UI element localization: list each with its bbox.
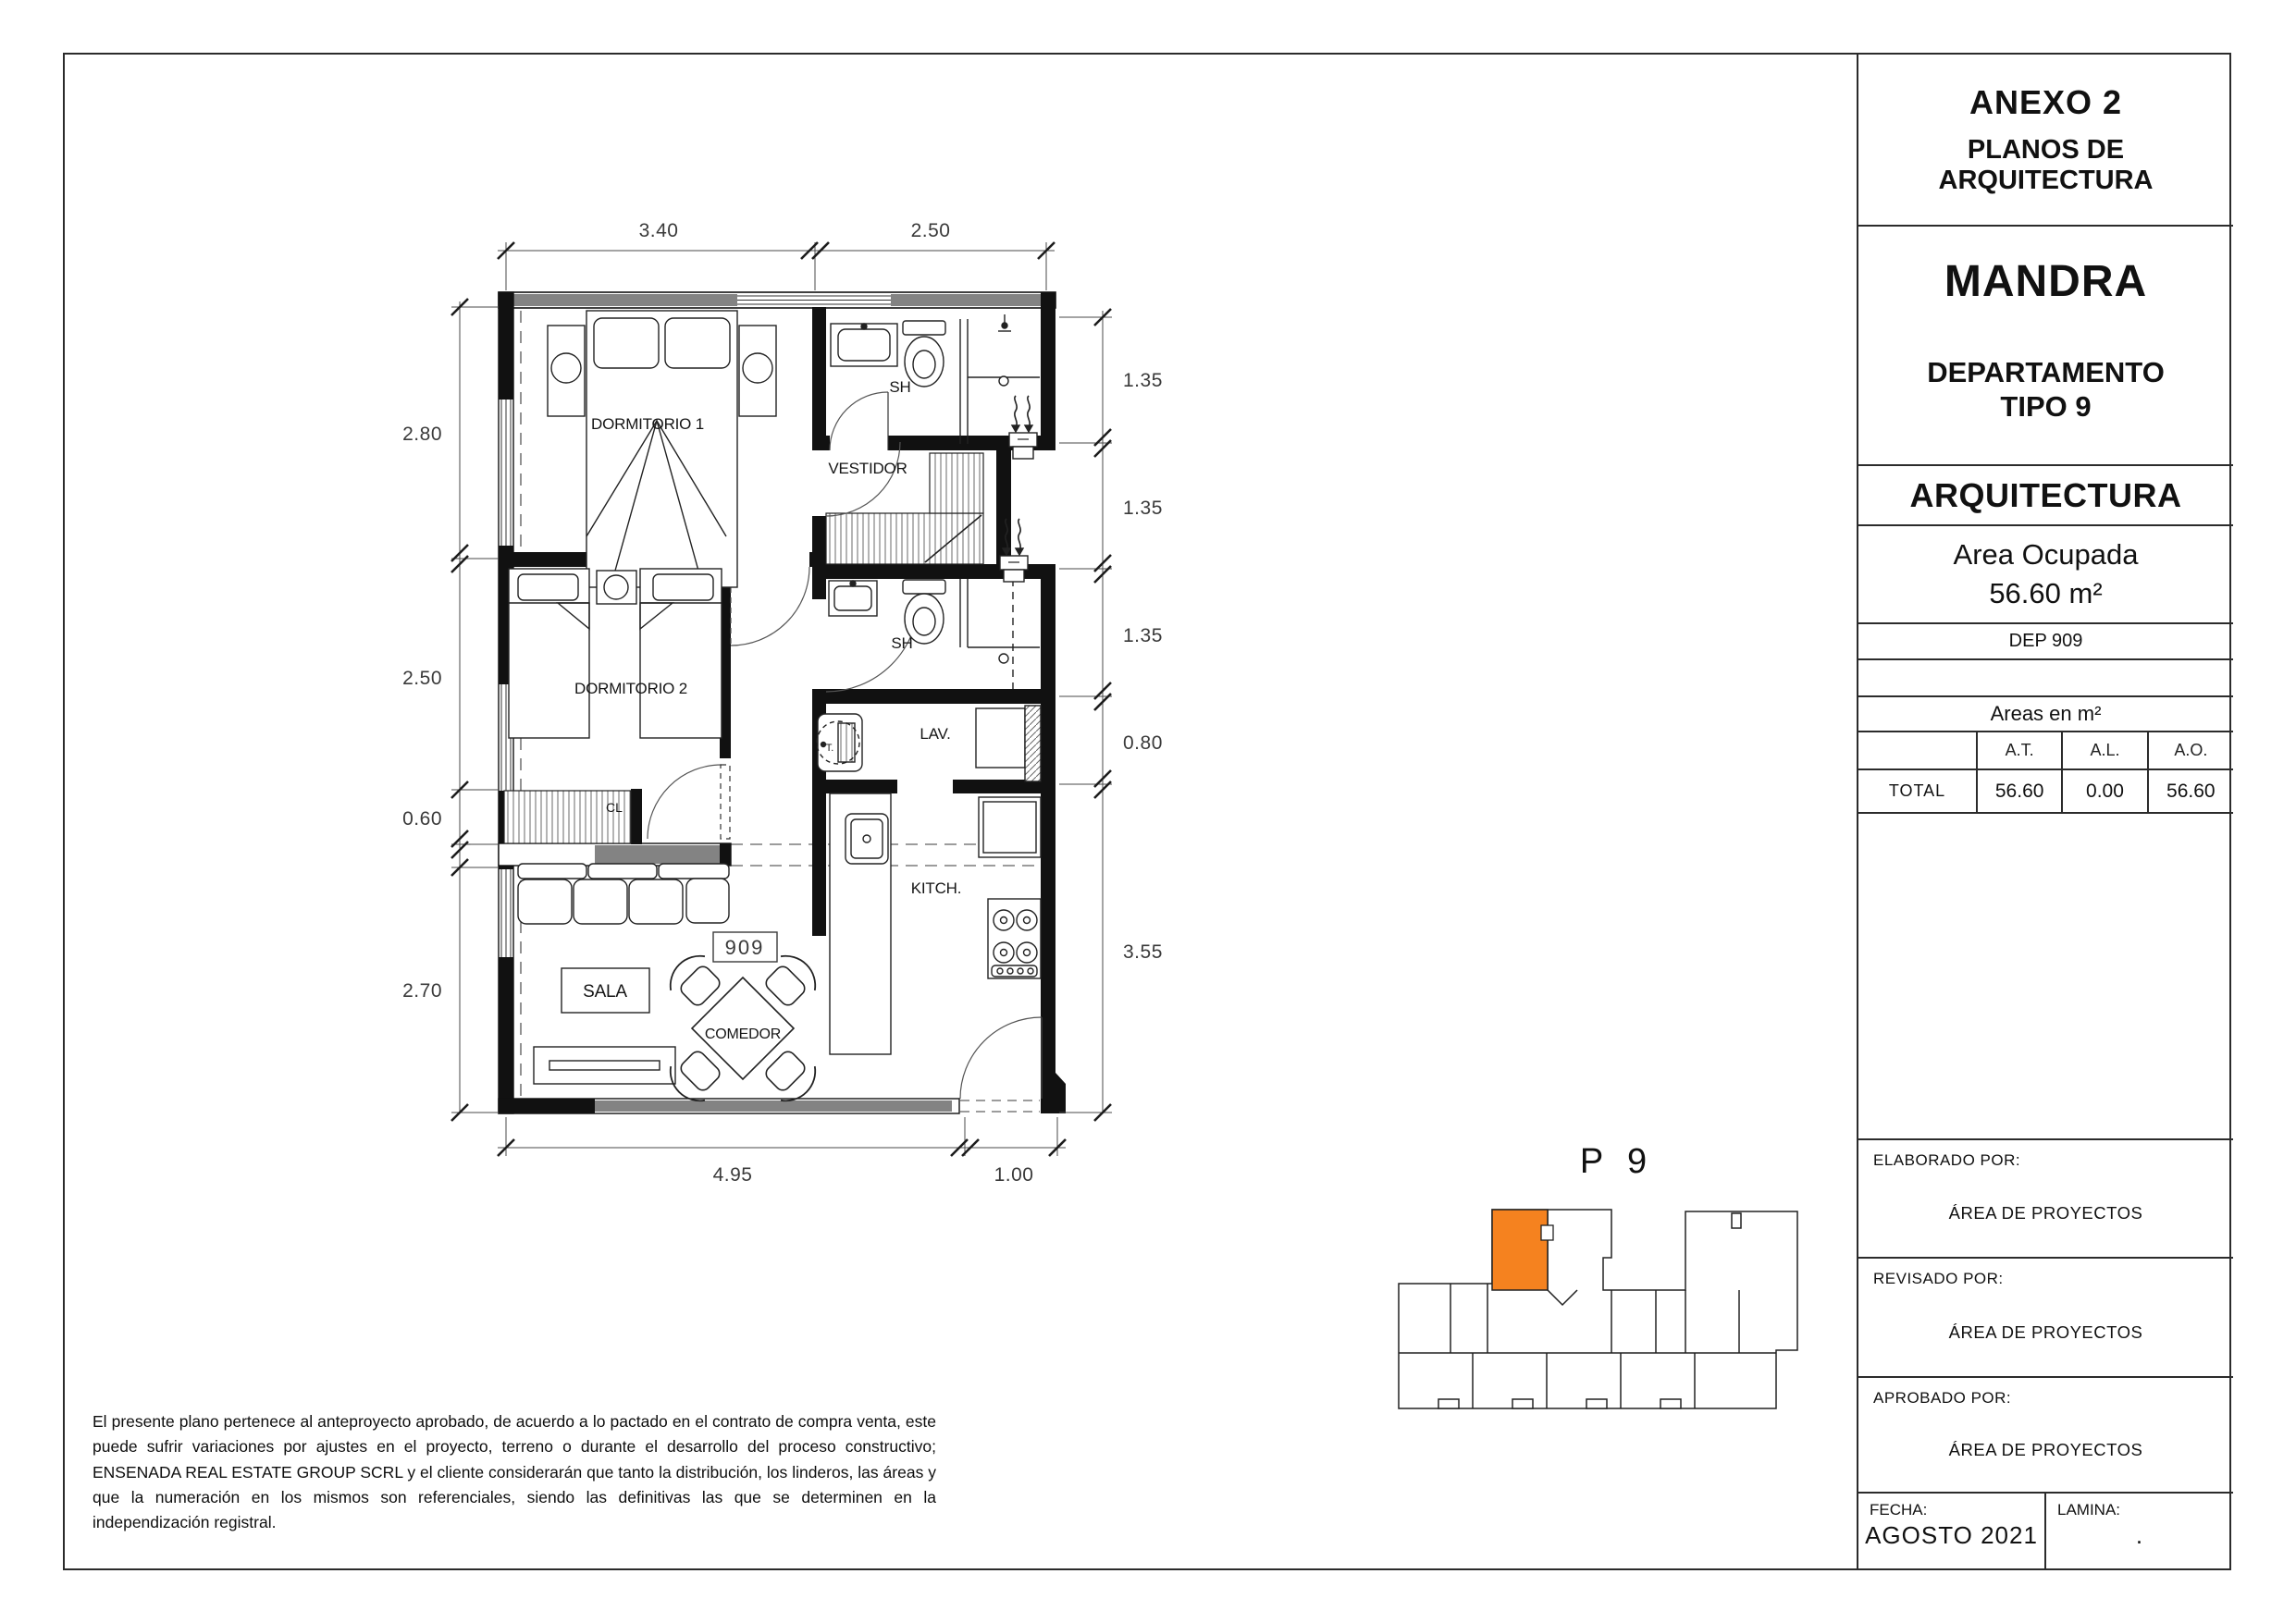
- unit-code: DEP 909: [2009, 631, 2083, 652]
- plan-sheet: DORMITORIO 1 DORMITORIO 2 VESTIDOR SH SH…: [0, 0, 2296, 1623]
- title-block: ANEXO 2 PLANOS DE ARQUITECTURA MANDRA DE…: [1857, 55, 2233, 1568]
- elaborated-label: ELABORADO POR:: [1858, 1140, 2233, 1170]
- table-row: TOTAL 56.60 0.00 56.60: [1858, 769, 2233, 812]
- areas-table-corner: [1858, 732, 1977, 769]
- sheet-number-value: .: [2136, 1521, 2143, 1550]
- elaborated-value: ÁREA DE PROYECTOS: [1949, 1203, 2143, 1223]
- unit-code-section: DEP 909: [1858, 624, 2233, 660]
- sheet-number-label: LAMINA:: [2046, 1494, 2233, 1519]
- discipline-section: ARQUITECTURA: [1858, 466, 2233, 526]
- areas-value-al: 0.00: [2062, 769, 2147, 812]
- date-cell: FECHA: AGOSTO 2021: [1858, 1494, 2046, 1568]
- spacer-section: [1858, 660, 2233, 697]
- areas-caption-section: Areas en m²: [1858, 697, 2233, 732]
- date-sheet-section: FECHA: AGOSTO 2021 LAMINA: .: [1858, 1494, 2233, 1568]
- disclaimer-text: El presente plano pertenece al anteproye…: [93, 1409, 936, 1535]
- areas-caption: Areas en m²: [1991, 702, 2102, 726]
- project-section: MANDRA DEPARTAMENTO TIPO 9: [1858, 227, 2233, 466]
- revised-value: ÁREA DE PROYECTOS: [1949, 1322, 2143, 1343]
- area-section: Area Ocupada 56.60 m²: [1858, 526, 2233, 624]
- areas-table: A.T. A.L. A.O. TOTAL 56.60 0.00 56.60: [1858, 732, 2233, 812]
- approved-section: APROBADO POR: ÁREA DE PROYECTOS: [1858, 1378, 2233, 1494]
- project-name: MANDRA: [1944, 256, 2147, 307]
- areas-col-al: A.L.: [2062, 732, 2147, 769]
- elaborated-section: ELABORADO POR: ÁREA DE PROYECTOS: [1858, 1140, 2233, 1259]
- approved-value: ÁREA DE PROYECTOS: [1949, 1440, 2143, 1460]
- annex-section: ANEXO 2 PLANOS DE ARQUITECTURA: [1858, 55, 2233, 227]
- discipline-title: ARQUITECTURA: [1910, 476, 2182, 515]
- annex-subtitle: PLANOS DE ARQUITECTURA: [1926, 135, 2166, 197]
- areas-row-label: TOTAL: [1858, 769, 1977, 812]
- approved-label: APROBADO POR:: [1858, 1378, 2233, 1408]
- annex-title: ANEXO 2: [1969, 83, 2122, 122]
- areas-col-at: A.T.: [1977, 732, 2062, 769]
- revised-label: REVISADO POR:: [1858, 1259, 2233, 1288]
- blank-section: [1858, 814, 2233, 1140]
- revised-section: REVISADO POR: ÁREA DE PROYECTOS: [1858, 1259, 2233, 1378]
- areas-value-at: 56.60: [1977, 769, 2062, 812]
- date-label: FECHA:: [1858, 1494, 2044, 1519]
- areas-value-ao: 56.60: [2148, 769, 2233, 812]
- occupied-area: Area Ocupada 56.60 m²: [1954, 535, 2139, 613]
- sheet-number-cell: LAMINA: .: [2046, 1494, 2233, 1568]
- areas-col-ao: A.O.: [2148, 732, 2233, 769]
- date-value: AGOSTO 2021: [1865, 1521, 2038, 1550]
- areas-table-section: A.T. A.L. A.O. TOTAL 56.60 0.00 56.60: [1858, 732, 2233, 814]
- unit-type: DEPARTAMENTO TIPO 9: [1927, 355, 2165, 424]
